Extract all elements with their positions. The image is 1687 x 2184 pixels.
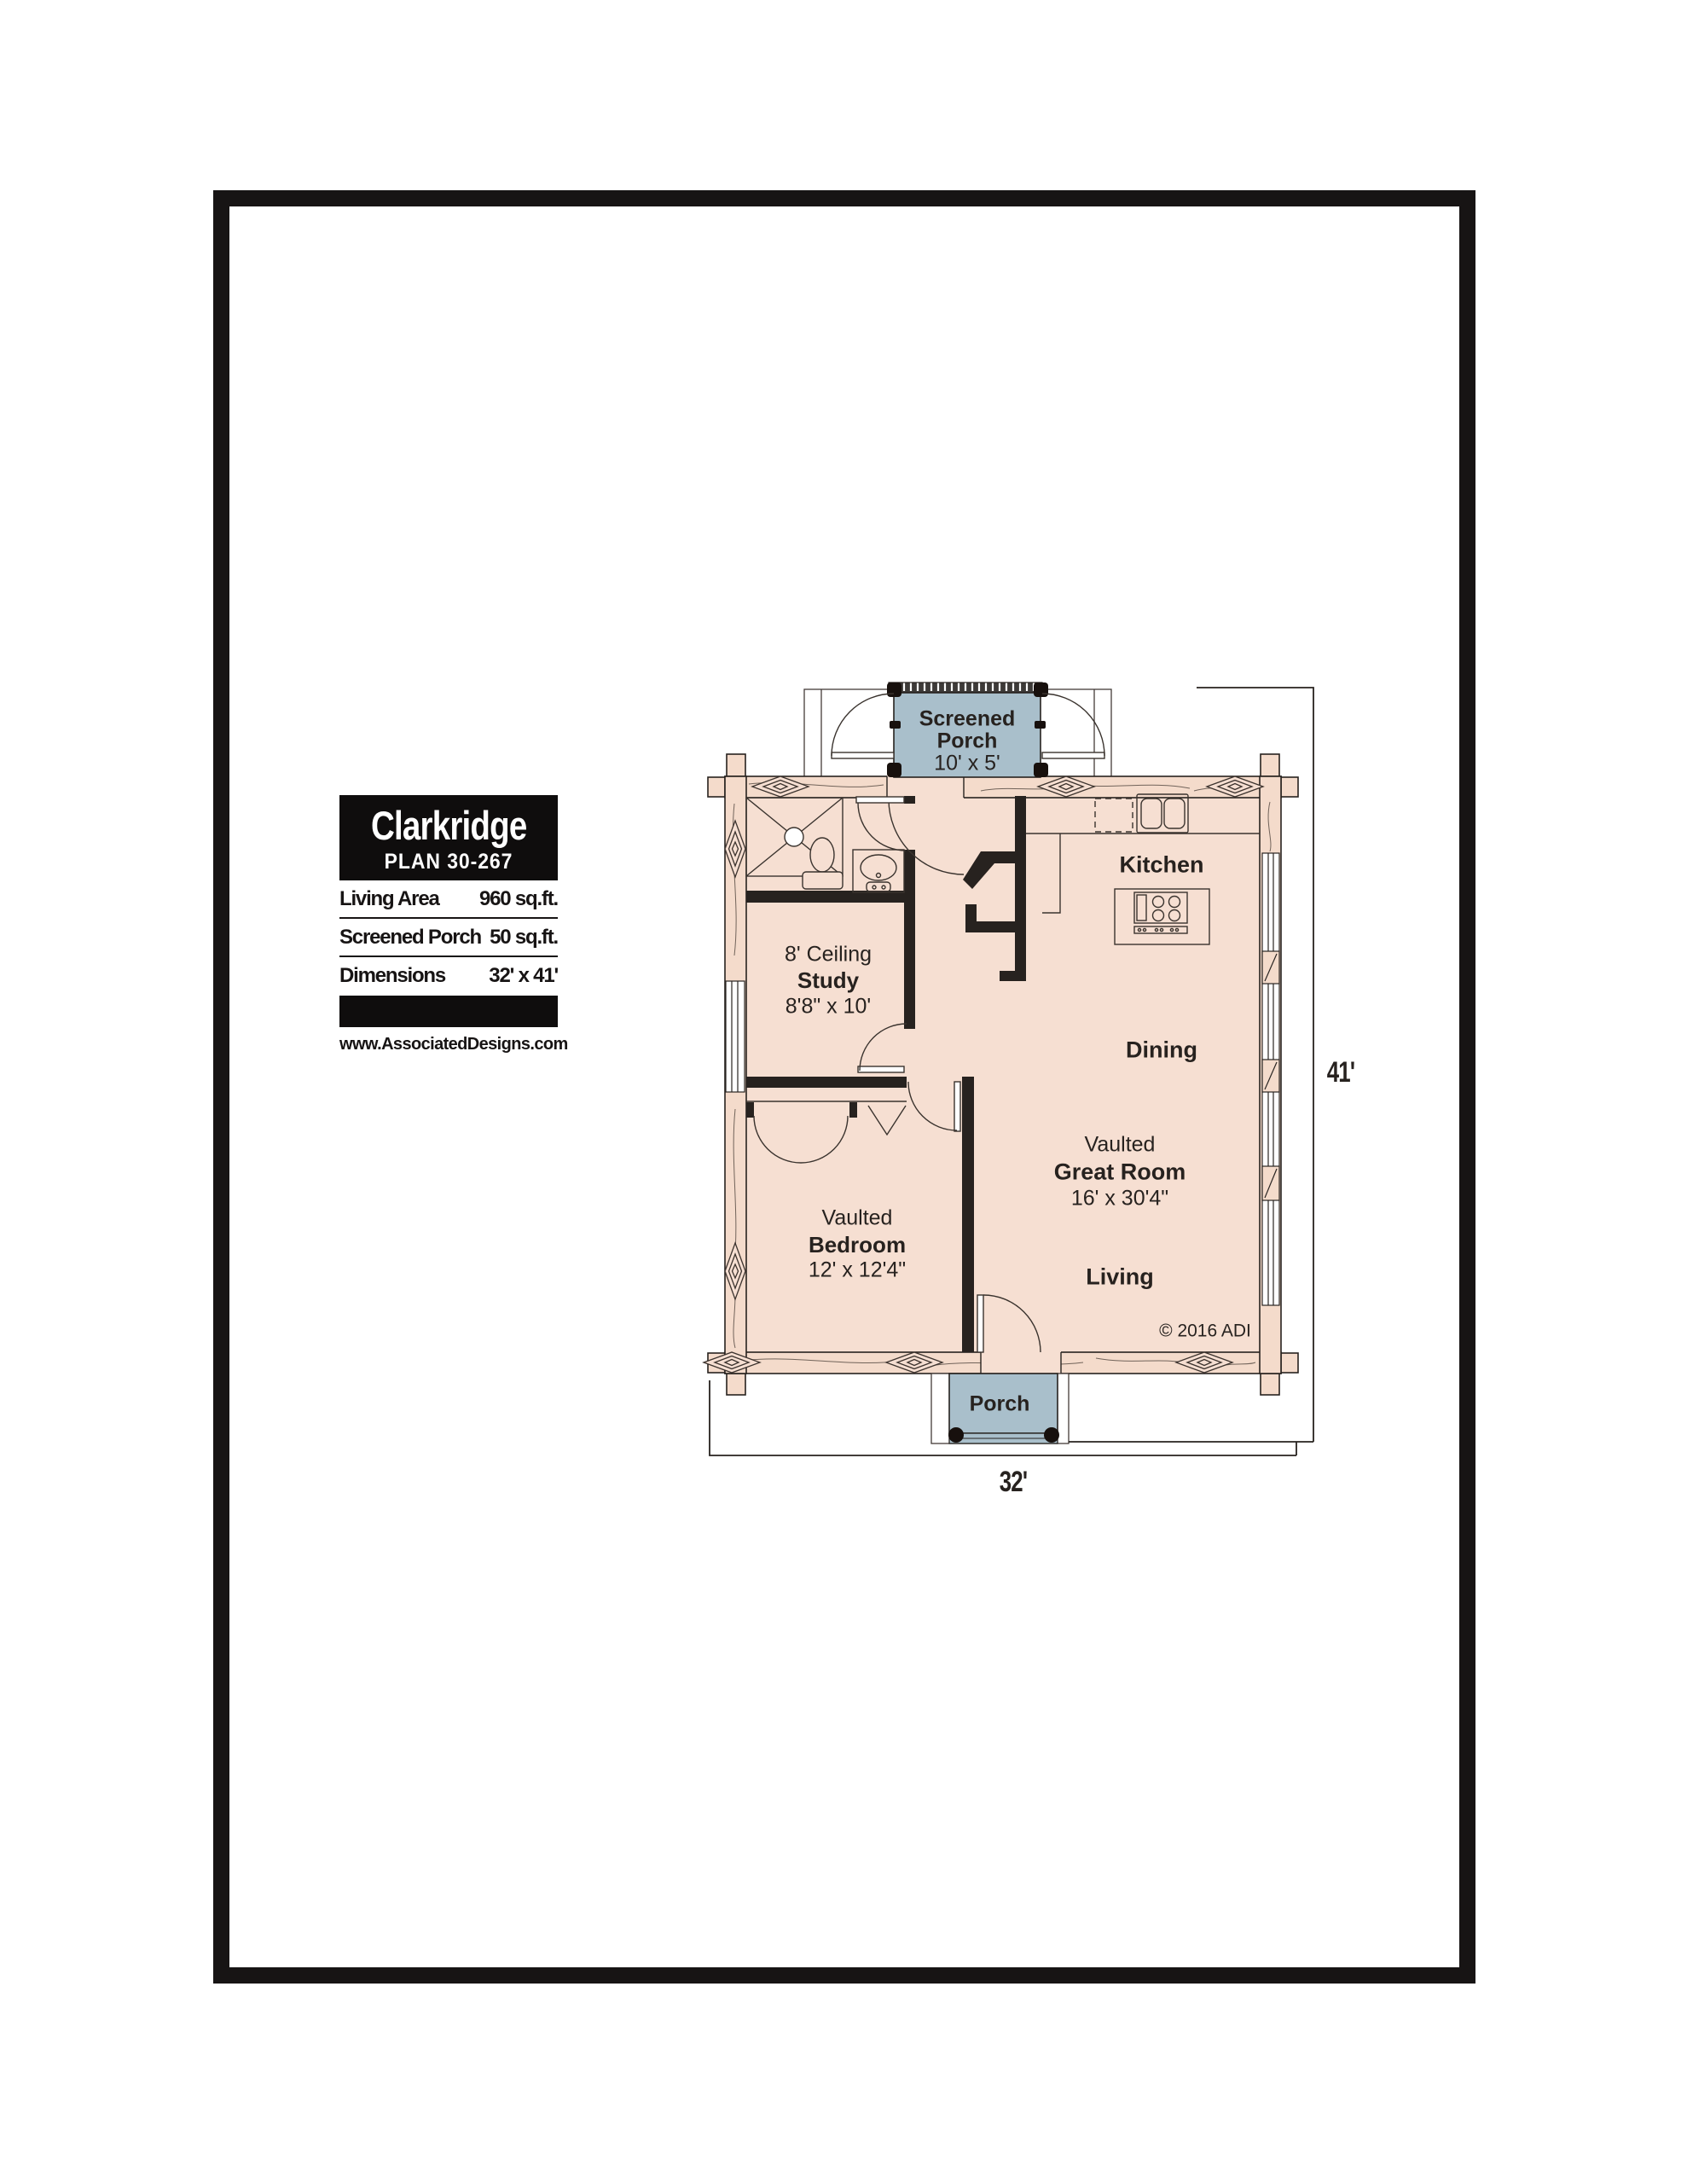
divider-bar xyxy=(339,996,558,1027)
title-block: Clarkridge PLAN 30-267 Living Area 960 s… xyxy=(339,795,558,1054)
plan-name: Clarkridge xyxy=(371,802,526,849)
spec-label: Living Area xyxy=(339,887,439,911)
floor-plan-drawing xyxy=(0,0,1687,2184)
living-label: Living xyxy=(1086,1266,1154,1289)
spec-row-screened-porch: Screened Porch 50 sq.ft. xyxy=(339,919,558,957)
great-room-prefix: Vaulted xyxy=(1085,1135,1156,1156)
plan-number: PLAN 30-267 xyxy=(348,850,549,874)
dimension-height-label: 41' xyxy=(1323,1058,1359,1087)
dimension-width-label: 32' xyxy=(995,1467,1032,1496)
kitchen-label: Kitchen xyxy=(1119,854,1203,877)
screened-porch-label-1: Screened xyxy=(919,709,1016,730)
dining-label: Dining xyxy=(1126,1039,1197,1062)
great-room-size: 16' x 30'4" xyxy=(1071,1188,1168,1210)
spec-row-dimensions: Dimensions 32' x 41' xyxy=(339,957,558,994)
dimension-width-value: 32' xyxy=(1000,1467,1028,1496)
spec-label: Dimensions xyxy=(339,964,445,988)
bedroom-label: Bedroom xyxy=(809,1234,906,1256)
spec-row-living-area: Living Area 960 sq.ft. xyxy=(339,880,558,919)
copyright-text: © 2016 ADI xyxy=(1159,1322,1251,1340)
spec-label: Screened Porch xyxy=(339,926,481,950)
study-size: 8'8" x 10' xyxy=(786,996,871,1018)
screened-porch-label-2: Porch xyxy=(937,731,998,752)
porch-label: Porch xyxy=(970,1394,1030,1415)
website-text: www.AssociatedDesigns.com xyxy=(339,1035,558,1054)
plan-title-box: Clarkridge PLAN 30-267 xyxy=(339,795,558,880)
study-ceiling-label: 8' Ceiling xyxy=(785,944,872,966)
great-room-label: Great Room xyxy=(1054,1161,1186,1184)
spec-value: 960 sq.ft. xyxy=(479,887,558,911)
bedroom-size: 12' x 12'4" xyxy=(809,1260,906,1281)
toilet xyxy=(810,838,834,872)
screened-porch-size: 10' x 5' xyxy=(934,753,1000,775)
spec-value: 32' x 41' xyxy=(489,964,558,988)
dimension-height-value: 41' xyxy=(1327,1058,1355,1087)
bedroom-prefix: Vaulted xyxy=(822,1208,893,1229)
study-label: Study xyxy=(797,969,859,991)
spec-value: 50 sq.ft. xyxy=(490,926,558,950)
